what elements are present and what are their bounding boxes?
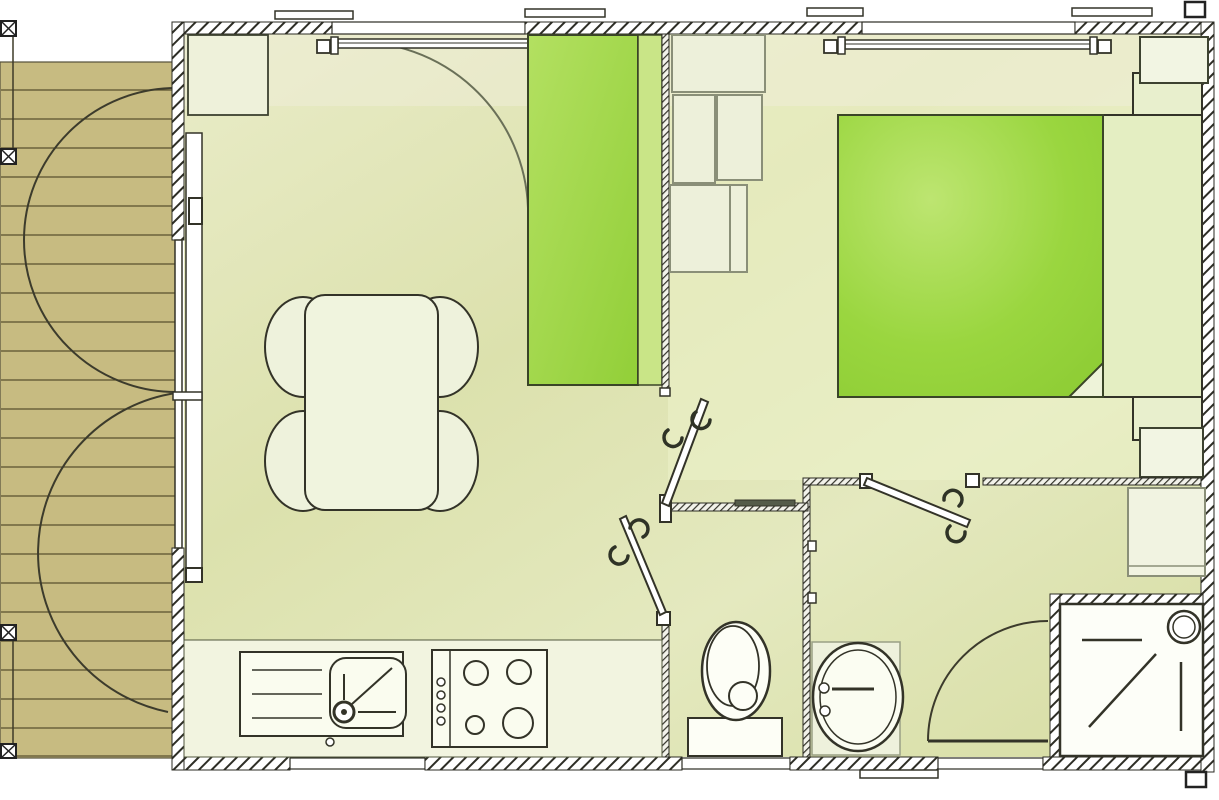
patio-door-crossbar bbox=[173, 392, 202, 400]
bedroom-rail-bracket bbox=[1098, 40, 1111, 53]
patio-door-endcap bbox=[186, 568, 202, 582]
nightstand-bottom bbox=[1140, 428, 1203, 477]
exterior-sill bbox=[275, 11, 353, 19]
partition-wc bbox=[662, 622, 669, 757]
wall-bedroom-south-b bbox=[983, 478, 1201, 485]
partition-knob bbox=[808, 593, 816, 603]
bunk-bed bbox=[528, 35, 638, 385]
bunk-bed-side bbox=[638, 35, 662, 385]
wall-left-bottom bbox=[172, 548, 184, 770]
basin-knob bbox=[819, 683, 829, 693]
partition-knob bbox=[808, 541, 816, 551]
wc-pocket-door bbox=[735, 500, 795, 506]
floor-plan bbox=[0, 0, 1219, 800]
sink-faucet-dot bbox=[341, 709, 347, 715]
bathroom-cabinet bbox=[1128, 488, 1205, 576]
shelf-unit bbox=[717, 95, 762, 180]
window-top-entry bbox=[332, 22, 525, 34]
window-top-bedroom bbox=[862, 22, 1075, 34]
sink-knob bbox=[326, 738, 334, 746]
entry-rail-tab bbox=[331, 37, 338, 54]
exterior-sill bbox=[807, 8, 863, 16]
shelf-unit bbox=[672, 35, 765, 92]
shower-wall-left bbox=[1050, 594, 1060, 757]
exterior-sill bbox=[1072, 8, 1152, 16]
stove-knob bbox=[437, 717, 445, 725]
plan-shapes bbox=[0, 2, 1214, 787]
bedroom-rail-tab bbox=[1090, 37, 1097, 54]
window-bottom-wc bbox=[682, 758, 790, 769]
stove-knob bbox=[437, 678, 445, 686]
window-bottom-bath bbox=[938, 758, 1043, 769]
jack-stand-bottom-right bbox=[1186, 772, 1206, 787]
jack-stand-top-right bbox=[1185, 2, 1205, 17]
toilet-flush bbox=[729, 682, 757, 710]
shelf-unit bbox=[670, 185, 747, 272]
floor-plan-svg bbox=[0, 0, 1219, 800]
wall-left-top bbox=[172, 22, 184, 240]
dining-table bbox=[305, 295, 438, 510]
bedroom-door-latch bbox=[966, 474, 979, 487]
partition-bathroom bbox=[803, 485, 810, 757]
toilet-cistern bbox=[688, 718, 782, 756]
partition-bedroom-cap bbox=[660, 388, 670, 396]
wall-top-mid bbox=[525, 22, 862, 34]
wall-bottom-c bbox=[790, 757, 938, 770]
nightstand-top bbox=[1140, 37, 1208, 83]
wall-bottom-b bbox=[425, 757, 682, 770]
wall-top-right bbox=[1075, 22, 1201, 34]
bedroom-rail-bracket bbox=[824, 40, 837, 53]
exterior-step bbox=[860, 770, 938, 778]
stove-knob bbox=[437, 691, 445, 699]
entry-rail-bracket bbox=[317, 40, 330, 53]
basin-knob bbox=[820, 706, 830, 716]
wall-bedroom-south-a bbox=[803, 478, 867, 485]
stove-knob bbox=[437, 704, 445, 712]
exterior-sill bbox=[525, 9, 605, 17]
corner-cabinet bbox=[188, 35, 268, 115]
shelf-unit bbox=[673, 95, 715, 183]
window-bottom-kitchen bbox=[290, 758, 425, 769]
wall-top-left bbox=[178, 22, 332, 34]
patio-door-handle bbox=[189, 198, 202, 224]
deck bbox=[0, 62, 178, 758]
bedroom-rail-tab bbox=[838, 37, 845, 54]
washbasin bbox=[813, 643, 903, 751]
wall-bottom-d bbox=[1043, 757, 1201, 770]
shower-wall-top bbox=[1050, 594, 1203, 604]
wall-bottom-a bbox=[178, 757, 290, 770]
partition-bedroom bbox=[662, 34, 669, 390]
bed-mattress bbox=[838, 115, 1103, 397]
